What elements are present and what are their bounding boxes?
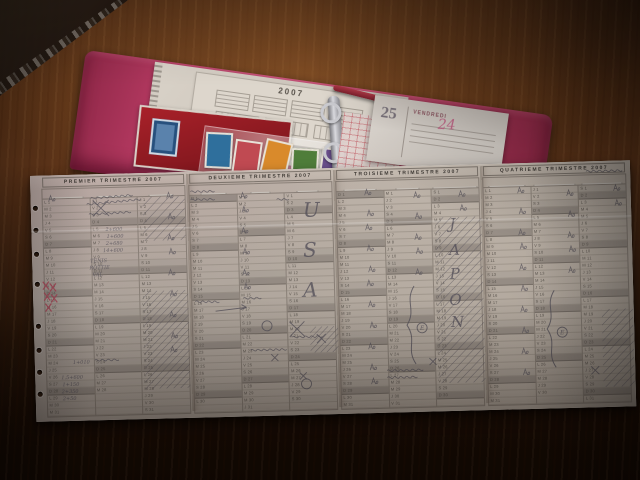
day-row [437,398,484,406]
planner-sheet: PREMIER TRIMESTRE 2007JANVIERFEVRIERMARS… [30,160,636,422]
day-row [290,402,337,410]
postage-stamp [149,118,181,157]
mini-calendar [252,95,288,117]
trimester-panel: DEUXIEME TRIMESTRE 2007AVRILMAIJUIND 1L … [186,170,339,411]
day-row: L 31 [584,394,631,402]
month-column: J 1V 2S 3D 4L 5M 6M 7J 8V 9S 10D 11L 12M… [530,186,583,404]
month-column: D 1L 2M 3M 4J 5V 6S 7D 8L 9M 10M 11J 12V… [337,191,389,409]
photo-scene: 2007 25 VE [0,0,640,480]
month-columns: D 1L 2M 3M 4J 5V 6S 7D 8L 9M 10M 11J 12V… [337,188,485,409]
month-columns: D 1L 2M 3M 4J 5V 6S 7D 8L 9M 10M 11J 12V… [190,192,338,413]
punch-hole [37,370,42,375]
day-row [537,396,584,404]
punch-hole [36,324,41,329]
month-column: J 1V 2S 3D 4L 5M 6M 7J 8V 9S 10D 11L 12M… [89,197,142,415]
trimester-panels: PREMIER TRIMESTRE 2007JANVIERFEVRIERMARS… [40,162,633,414]
month-header: JUIN [284,182,332,192]
month-header: SEPTEMBRE [431,178,479,188]
diary-divider [401,107,409,158]
trimester-panel: PREMIER TRIMESTRE 2007JANVIERFEVRIERMARS… [40,174,192,415]
month-header: AVRIL [189,185,237,195]
mini-calendar [214,90,250,112]
month-header: DECEMBRE [578,174,626,184]
punch-hole [33,206,38,211]
day-row: S 31 [143,406,190,414]
month-header: OCTOBRE [483,177,531,187]
month-header: AOUT [384,180,432,190]
month-column: S 1D 2L 3M 4M 5J 6V 7S 8D 9L 10M 11M 12J… [578,184,631,402]
punch-hole [33,228,38,233]
month-column: L 1M 2M 3J 4V 5S 6D 7L 8M 9M 10J 11V 12S… [43,198,95,416]
trimester-grid: JANVIERFEVRIERMARSL 1M 2M 3J 4V 5S 6D 7L… [41,185,191,418]
punch-hole [37,348,42,353]
postage-stamp [204,132,233,169]
day-row [96,407,143,415]
punch-hole [35,282,40,287]
month-header: FEVRIER [90,187,138,197]
month-header: JUILLET [336,181,384,191]
month-column: J 1V 2S 3D 4L 5M 6M 7J 8V 9S 10D 11L 12M… [137,196,190,414]
day-row: M 31 [489,397,536,405]
diary-handwritten-note: 24 [437,117,455,134]
month-column: V 1S 2D 3L 4M 5M 6J 7V 8S 9D 10L 11M 12M… [284,192,337,410]
trimester-panel: TROISIEME TRIMESTRE 2007JUILLETAOUTSEPTE… [333,166,486,407]
month-columns: L 1M 2M 3J 4V 5S 6D 7L 8M 9M 10J 11V 12S… [483,184,631,405]
month-header: MAI [237,183,285,193]
punch-hole [38,392,43,397]
month-column: M 1J 2V 3S 4D 5L 6M 7M 8J 9V 10S 11D 12L… [383,190,436,408]
day-row: J 31 [243,403,290,411]
month-column: S 1D 2L 3M 4M 5J 6V 7S 8D 9L 10M 11M 12J… [431,188,484,406]
month-column: D 1L 2M 3M 4J 5V 6S 7D 8L 9M 10M 11J 12V… [190,195,242,413]
month-header: JANVIER [42,188,90,198]
day-row: V 31 [390,399,437,407]
trimester-grid: AVRILMAIJUIND 1L 2M 3M 4J 5V 6S 7D 8L 9M… [188,181,338,414]
punch-hole [34,252,39,257]
trimester-grid: JUILLETAOUTSEPTEMBRED 1L 2M 3M 4J 5V 6S … [335,177,485,410]
binder-ring [320,102,342,124]
month-columns: L 1M 2M 3J 4V 5S 6D 7L 8M 9M 10J 11V 12S… [43,196,191,417]
month-header: NOVEMBRE [531,176,579,186]
month-column: L 1M 2M 3J 4V 5S 6D 7L 8M 9M 10J 11V 12S… [483,187,535,405]
month-column: M 1M 2J 3V 4S 5D 6L 7M 8M 9J 10V 11S 12D… [236,193,289,411]
day-row: M 31 [48,408,95,416]
diary-day-number: 25 [380,104,398,124]
day-row [195,405,242,413]
month-header: MARS [137,186,185,196]
trimester-panel: QUATRIEME TRIMESTRE 2007OCTOBRENOVEMBRED… [480,162,633,403]
trimester-grid: OCTOBRENOVEMBREDECEMBREL 1M 2M 3J 4V 5S … [482,173,632,406]
day-row: M 31 [342,401,389,409]
